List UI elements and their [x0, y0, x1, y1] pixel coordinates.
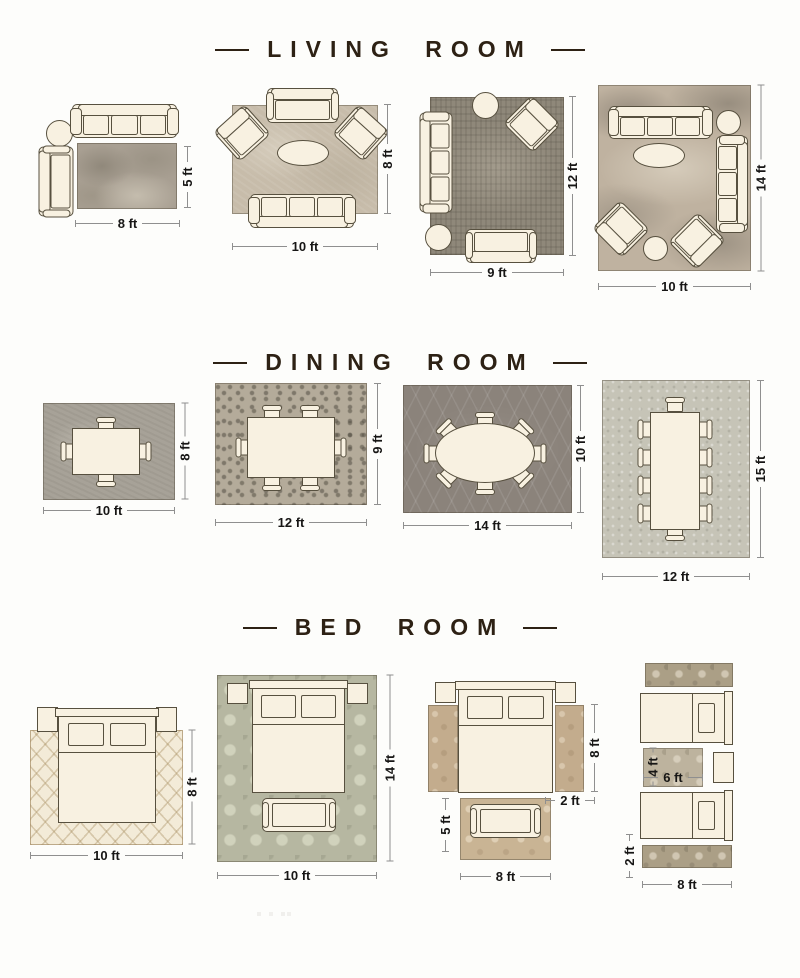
headboard [724, 790, 733, 841]
sofa-cushions [474, 232, 528, 252]
bench-arm [329, 802, 337, 828]
watermark-remnant [257, 910, 291, 917]
title-dash [523, 627, 557, 629]
sofa-arm [719, 223, 745, 233]
height-dimension: 8 ft [379, 104, 395, 214]
bed [458, 682, 553, 793]
title-dash [215, 49, 249, 51]
title-dash [243, 627, 277, 629]
loveseat [267, 88, 338, 123]
sofa-arm [423, 111, 450, 122]
sofa-cushions [50, 154, 71, 208]
round-side-table [46, 120, 73, 147]
mattress-line [692, 693, 693, 743]
width-dimension: 12 ft [602, 568, 750, 584]
sofa-3-seat [716, 136, 748, 232]
sofa-arm [719, 135, 745, 145]
sofa-cushions [275, 100, 330, 121]
round-side-table [716, 110, 741, 135]
bench [470, 804, 541, 838]
headboard [455, 681, 556, 690]
section-title-text: LIVING ROOM [267, 36, 533, 63]
height-dimension: 9 ft [369, 383, 385, 505]
bed [252, 681, 345, 793]
headboard [55, 708, 159, 717]
pillow [698, 703, 715, 734]
sofa-arm [42, 210, 70, 217]
sofa-arm [248, 197, 259, 225]
width-dimension: 10 ft [43, 502, 175, 518]
center-rug-width-dimension: 6 ft [643, 769, 703, 785]
sofa-arm [70, 108, 81, 136]
pillow [301, 695, 336, 718]
nightstand [555, 682, 576, 703]
bed-runner-right [555, 705, 584, 792]
bench-arm [262, 802, 270, 828]
foot-rug-height-dimension: 5 ft [437, 798, 453, 852]
section-title-text: BED ROOM [295, 614, 506, 641]
twin-bed [640, 792, 732, 839]
sofa-arm [423, 203, 450, 214]
nightstand [347, 683, 368, 704]
title-dash [553, 362, 587, 364]
sofa-arm [529, 232, 536, 260]
bench-arm [534, 808, 542, 834]
loveseat [466, 229, 536, 263]
headboard [249, 680, 348, 689]
dining-chair [665, 397, 685, 412]
nightstand [713, 752, 734, 783]
height-dimension: 14 ft [753, 85, 769, 272]
round-side-table [425, 224, 452, 251]
height-dimension: 5 ft [179, 146, 195, 208]
sofa-arm [344, 197, 355, 225]
width-dimension: 10 ft [30, 847, 183, 863]
runner-width-dimension: 2 ft [545, 792, 595, 808]
height-dimension: 8 ft [177, 403, 193, 500]
twin-runner-bottom [642, 845, 732, 868]
width-dimension: 10 ft [217, 867, 377, 883]
title-dash [551, 49, 585, 51]
nightstand [156, 707, 177, 732]
runner-height-dimension: 8 ft [586, 704, 602, 792]
bed-runner-left [428, 705, 458, 792]
sofa-cushions [261, 197, 343, 217]
title-dash [213, 362, 247, 364]
oval-coffee-table [633, 143, 685, 168]
round-side-table [472, 92, 499, 119]
sofa-3-seat [420, 113, 453, 213]
nightstand [227, 683, 248, 704]
twin-bed [640, 693, 732, 743]
sofa-arm [702, 109, 713, 136]
section-title-dining-room: DINING ROOM [0, 349, 800, 376]
foot-rug-width-dimension: 8 ft [460, 868, 551, 884]
width-dimension: 10 ft [232, 238, 378, 254]
runner-width-dimension: 2 ft [621, 834, 637, 878]
mattress-line [252, 724, 345, 725]
height-dimension: 12 ft [564, 96, 580, 256]
sofa-arm [266, 92, 274, 120]
dining-chair [262, 476, 282, 491]
sofa-arm [608, 109, 619, 136]
width-dimension: 12 ft [215, 514, 367, 530]
height-dimension: 14 ft [382, 675, 398, 862]
dining-chair [300, 476, 320, 491]
sofa-cushions [83, 115, 165, 135]
mattress-line [458, 725, 553, 726]
sofa-cushions [719, 146, 738, 221]
twin-runner-top [645, 663, 733, 687]
round-side-table [643, 236, 668, 261]
pillow [110, 723, 146, 746]
height-dimension: 8 ft [184, 730, 200, 845]
section-title-living-room: LIVING ROOM [0, 36, 800, 63]
sofa-cushions [430, 123, 450, 201]
bench-seat [480, 809, 531, 833]
sofa-3-seat [250, 194, 354, 228]
bed [58, 709, 156, 823]
pillow [261, 695, 296, 718]
sofa-3-seat [609, 106, 711, 139]
pillow [467, 696, 502, 719]
oval-coffee-table [277, 140, 329, 166]
dining-table [72, 428, 140, 475]
height-dimension: 15 ft [752, 380, 768, 558]
section-title-text: DINING ROOM [265, 349, 534, 376]
width-dimension: 9 ft [430, 264, 564, 280]
width-dimension: 10 ft [598, 278, 751, 294]
mattress-line [58, 752, 156, 753]
section-title-bed-room: BED ROOM [0, 614, 800, 641]
oval-dining-table [435, 423, 535, 483]
width-dimension: 14 ft [403, 517, 572, 533]
living-rug-8x5 [77, 143, 177, 209]
sofa-arm [167, 108, 178, 136]
sofa-arm [331, 92, 339, 120]
bench-seat [272, 803, 325, 827]
dining-table [247, 417, 335, 478]
width-dimension: 8 ft [75, 215, 180, 231]
rug-size-guide-infographic: LIVING ROOM DINING ROOM BED ROOM 8 ft 5 … [0, 0, 800, 978]
sofa-arm [465, 232, 472, 260]
headboard [724, 691, 733, 745]
runner-length-dimension: 8 ft [642, 876, 732, 892]
bench-arm [470, 808, 478, 834]
pillow [68, 723, 104, 746]
pillow [508, 696, 543, 719]
height-dimension: 10 ft [572, 385, 588, 513]
nightstand [435, 682, 456, 703]
sofa-3-seat [72, 104, 177, 138]
dining-table [650, 412, 700, 530]
pillow [698, 801, 715, 830]
mattress-line [692, 792, 693, 839]
sofa-arm [42, 146, 70, 153]
bench [262, 798, 336, 832]
sofa-cushions [620, 117, 700, 137]
chaise-sofa [39, 147, 74, 217]
